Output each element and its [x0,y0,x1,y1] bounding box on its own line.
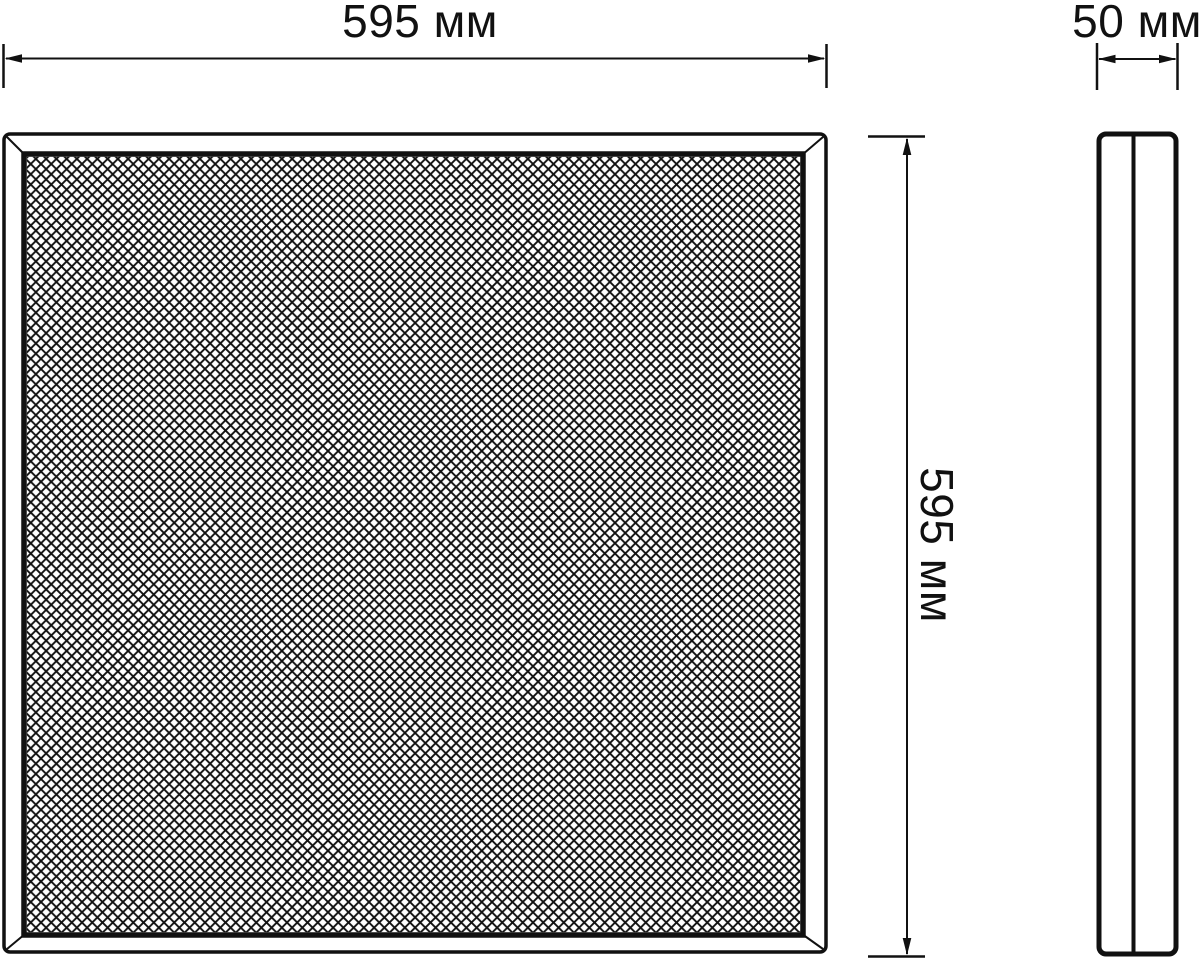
width-dimension: 595 мм [4,0,827,88]
height-arrow-bottom-icon [903,938,912,955]
side-view [1099,134,1176,954]
width-arrow-right-icon [808,54,825,63]
depth-arrow-left-icon [1098,55,1115,64]
height-arrow-top-icon [903,138,912,155]
depth-arrow-right-icon [1159,55,1176,64]
height-dimension-label: 595 мм [911,467,963,623]
depth-dimension: 50 мм [1072,0,1200,90]
height-dimension: 595 мм [868,137,963,957]
width-arrow-left-icon [5,54,22,63]
front-view [4,134,826,952]
front-view-mesh-diffuser [27,157,800,932]
technical-drawing: 595 мм 595 мм 50 мм [0,0,1200,964]
depth-dimension-label: 50 мм [1072,0,1200,47]
side-view-body [1099,134,1176,954]
ink-layer: 595 мм 595 мм 50 мм [4,0,1200,957]
drawing-canvas: 595 мм 595 мм 50 мм [0,0,1200,964]
width-dimension-label: 595 мм [342,0,498,47]
